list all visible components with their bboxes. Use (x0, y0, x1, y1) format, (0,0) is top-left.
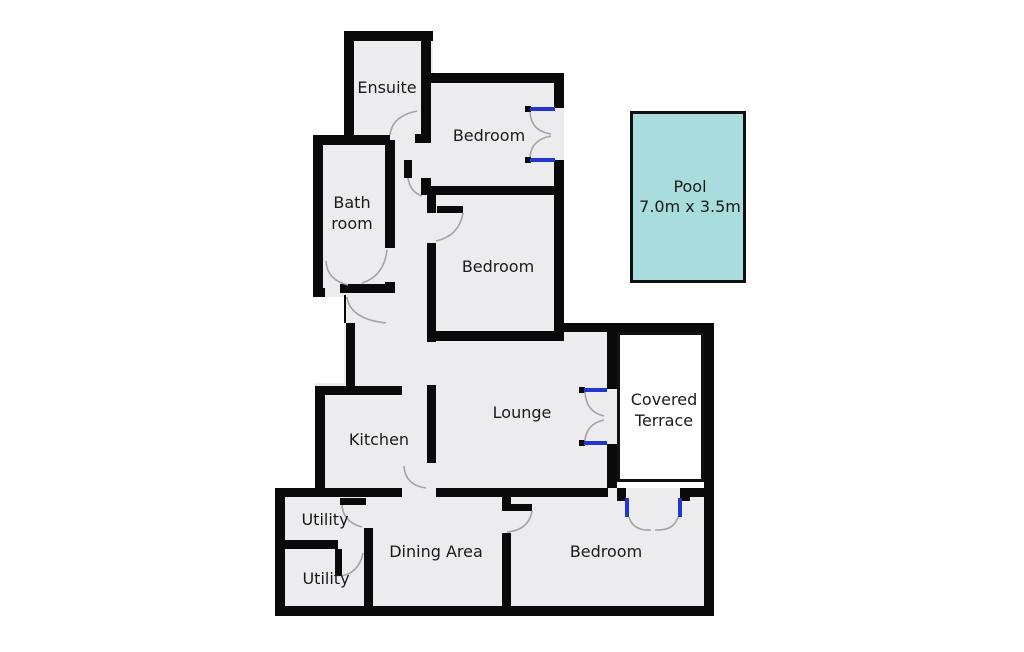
room-label-utility-lower: Utility (302, 569, 349, 588)
pool: Pool 7.0m x 3.5m (632, 113, 745, 282)
room-label-bedroom-top: Bedroom (453, 126, 525, 145)
wall-segment (313, 135, 390, 145)
window-marker (625, 498, 629, 517)
wall-segment (346, 323, 355, 386)
wall-segment (427, 186, 564, 195)
wall-segment (436, 331, 564, 341)
wall-segment (427, 243, 436, 342)
room-label-bathroom-line1: Bath (333, 193, 370, 212)
window-marker (584, 441, 607, 445)
wall-segment (554, 195, 564, 332)
wall-segment (385, 140, 395, 248)
wall-segment (364, 528, 373, 607)
room-label-bathroom-line2: room (331, 214, 372, 233)
covered-terrace: Covered Terrace (619, 334, 703, 481)
wall-segment (502, 533, 511, 607)
pool-dimensions: 7.0m x 3.5m (639, 197, 741, 216)
window-marker (530, 107, 555, 111)
room-label-bedroom-middle: Bedroom (462, 257, 534, 276)
window-marker (584, 388, 607, 392)
wall-segment (704, 323, 714, 616)
wall-segment (682, 488, 714, 497)
entry-opening-line (344, 295, 346, 323)
wall-segment (554, 83, 564, 108)
wall-segment (275, 488, 285, 616)
room-label-lounge: Lounge (493, 403, 552, 422)
floorplan-canvas: Covered Terrace Pool 7.0m x 3.5m Ensuite… (0, 0, 1024, 652)
wall-segment (617, 488, 626, 501)
room-label-covered-terrace-line1: Covered (631, 390, 698, 409)
wall-segment (556, 323, 714, 332)
wall-segment (415, 134, 431, 143)
pool-label: Pool (673, 177, 706, 196)
wall-segment (315, 386, 325, 488)
wall-segment (423, 73, 564, 83)
wall-segment (275, 488, 402, 497)
wall-segment (607, 332, 617, 389)
wall-segment (427, 385, 436, 463)
wall-segment (315, 386, 402, 395)
window-marker (678, 498, 682, 517)
wall-segment (313, 288, 325, 297)
wall-segment (344, 31, 433, 41)
door-leaf (502, 504, 532, 511)
wall-segment (344, 31, 354, 145)
door-leaf (404, 160, 412, 178)
floorplan-page: Covered Terrace Pool 7.0m x 3.5m Ensuite… (0, 0, 1024, 652)
door-leaf (340, 498, 366, 505)
entry-floor (344, 287, 437, 397)
room-label-dining-area: Dining Area (389, 542, 483, 561)
wall-segment (340, 284, 395, 293)
wall-segment (427, 186, 436, 213)
wall-segment (421, 31, 431, 142)
wall-segment (436, 488, 608, 497)
room-label-bedroom-bottom: Bedroom (570, 542, 642, 561)
room-label-kitchen: Kitchen (349, 430, 409, 449)
room-label-covered-terrace-line2: Terrace (634, 411, 693, 430)
window-marker (530, 158, 555, 162)
wall-segment (275, 540, 338, 549)
wall-segment (275, 606, 714, 616)
room-label-ensuite: Ensuite (357, 78, 416, 97)
door-leaf (437, 206, 463, 213)
wall-segment (607, 444, 617, 488)
room-label-utility-upper: Utility (301, 510, 348, 529)
wall-segment (313, 135, 323, 297)
